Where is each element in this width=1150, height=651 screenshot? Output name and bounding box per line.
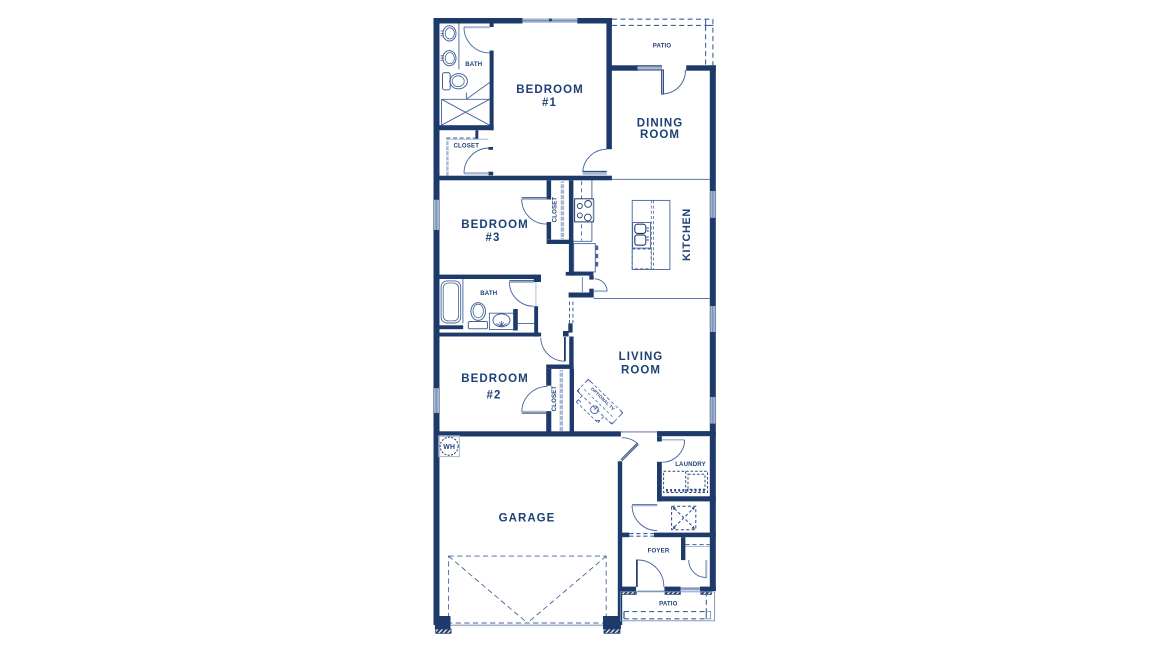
svg-text:KITCHEN: KITCHEN — [681, 208, 693, 261]
svg-text:GARAGE: GARAGE — [499, 513, 556, 525]
svg-text:LAUNDRY: LAUNDRY — [675, 461, 706, 468]
svg-text:CLOSET: CLOSET — [552, 197, 559, 223]
svg-text:ROOM: ROOM — [640, 129, 680, 141]
svg-text:CLOSET: CLOSET — [453, 142, 479, 149]
svg-text:CLOSET: CLOSET — [551, 386, 558, 412]
svg-text:BEDROOM: BEDROOM — [461, 373, 528, 385]
svg-text:BEDROOM: BEDROOM — [516, 84, 583, 96]
svg-text:WH: WH — [443, 444, 455, 451]
svg-text:PATIO: PATIO — [659, 601, 678, 608]
svg-text:BATH: BATH — [480, 290, 497, 297]
svg-text:#2: #2 — [487, 390, 502, 402]
svg-text:#3: #3 — [486, 232, 501, 244]
svg-text:FOYER: FOYER — [648, 547, 670, 554]
svg-text:PATIO: PATIO — [653, 43, 672, 50]
svg-text:DINING: DINING — [637, 118, 684, 130]
svg-text:BEDROOM: BEDROOM — [461, 219, 528, 231]
svg-text:#1: #1 — [542, 97, 557, 109]
svg-text:LIVING: LIVING — [619, 351, 664, 363]
svg-text:BATH: BATH — [465, 61, 482, 68]
svg-text:ROOM: ROOM — [621, 365, 661, 377]
